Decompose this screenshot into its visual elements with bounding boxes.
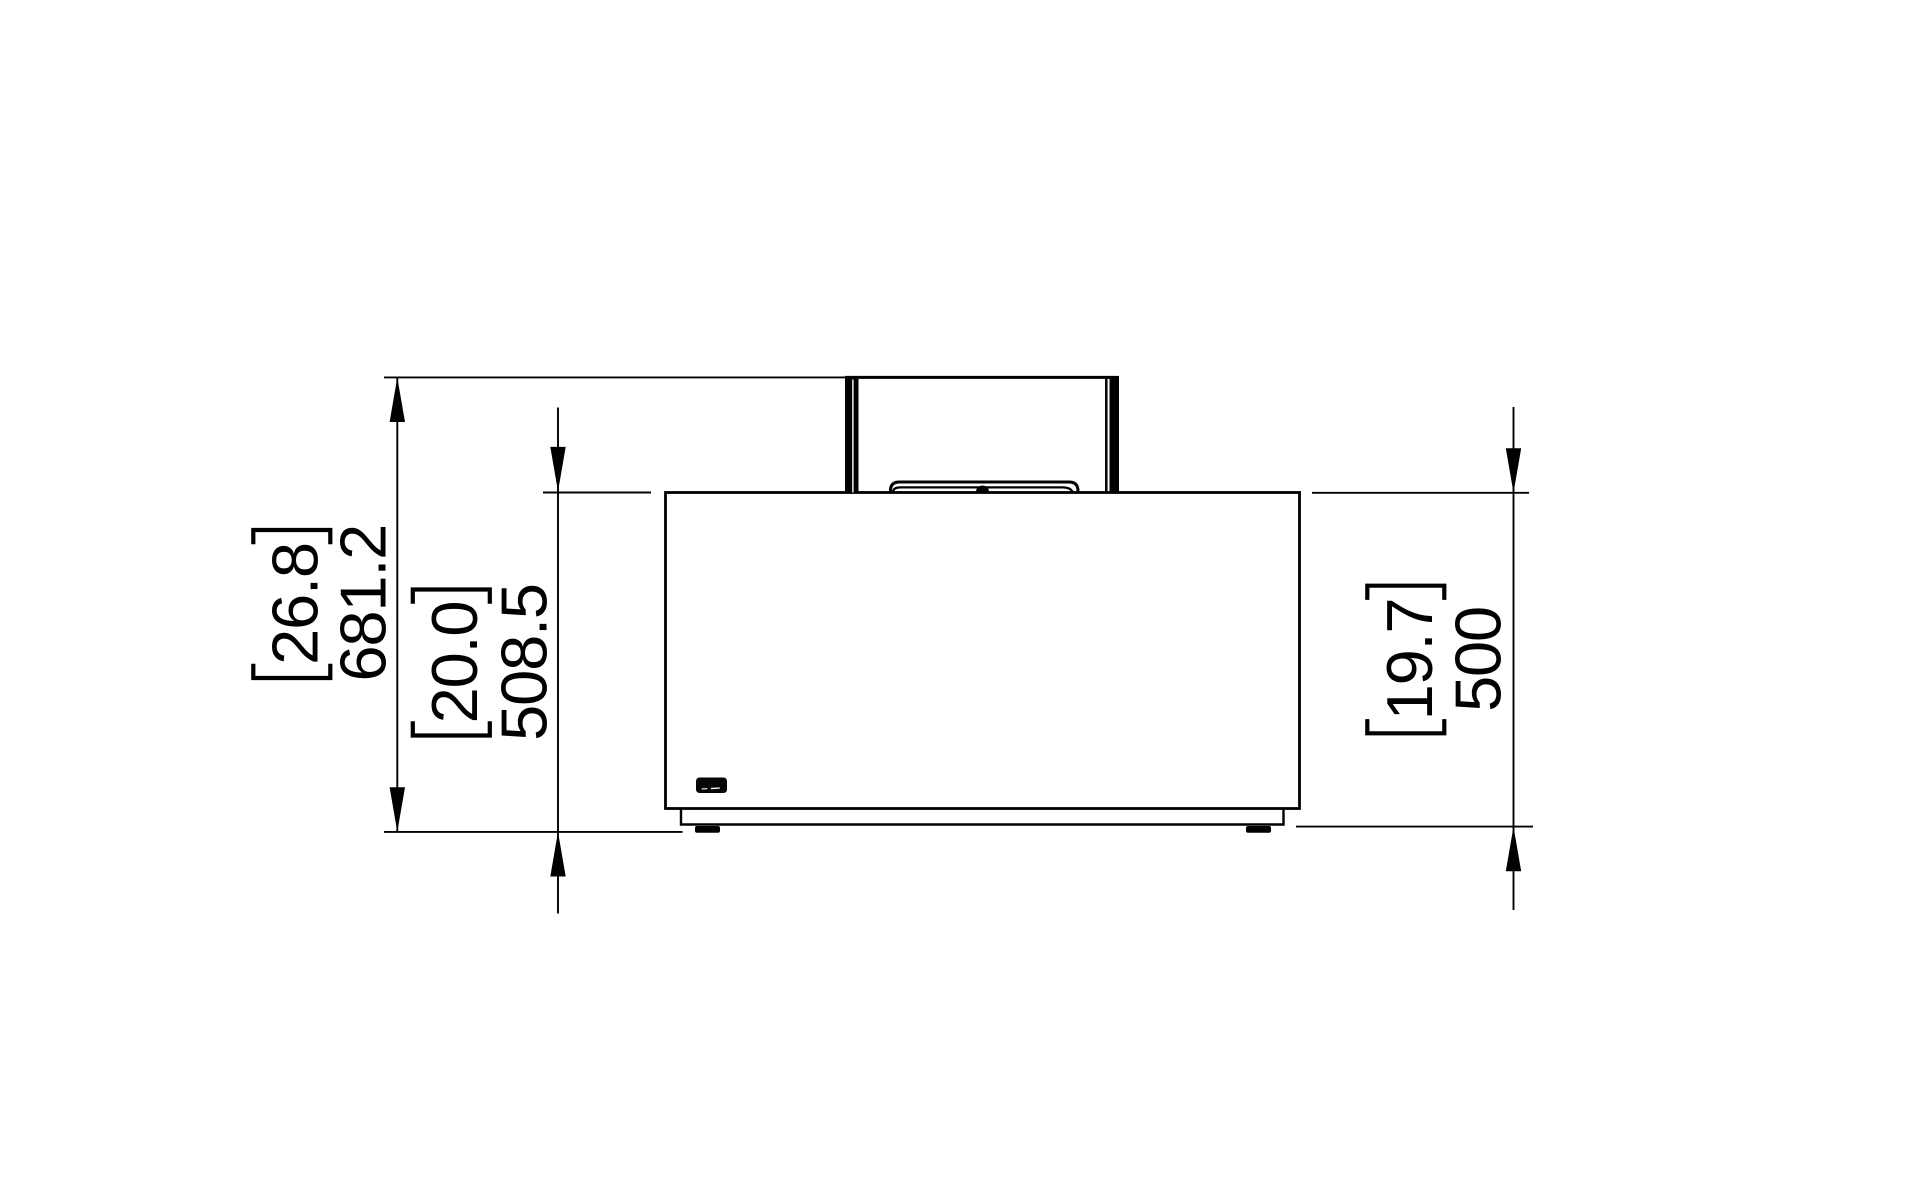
svg-text:20.0: 20.0	[418, 602, 491, 724]
svg-text:19.7: 19.7	[1373, 599, 1446, 721]
svg-text:508.5: 508.5	[488, 584, 561, 741]
svg-text:500: 500	[1442, 607, 1515, 712]
svg-text:681.2: 681.2	[327, 525, 400, 682]
svg-text:26.8: 26.8	[259, 543, 332, 665]
